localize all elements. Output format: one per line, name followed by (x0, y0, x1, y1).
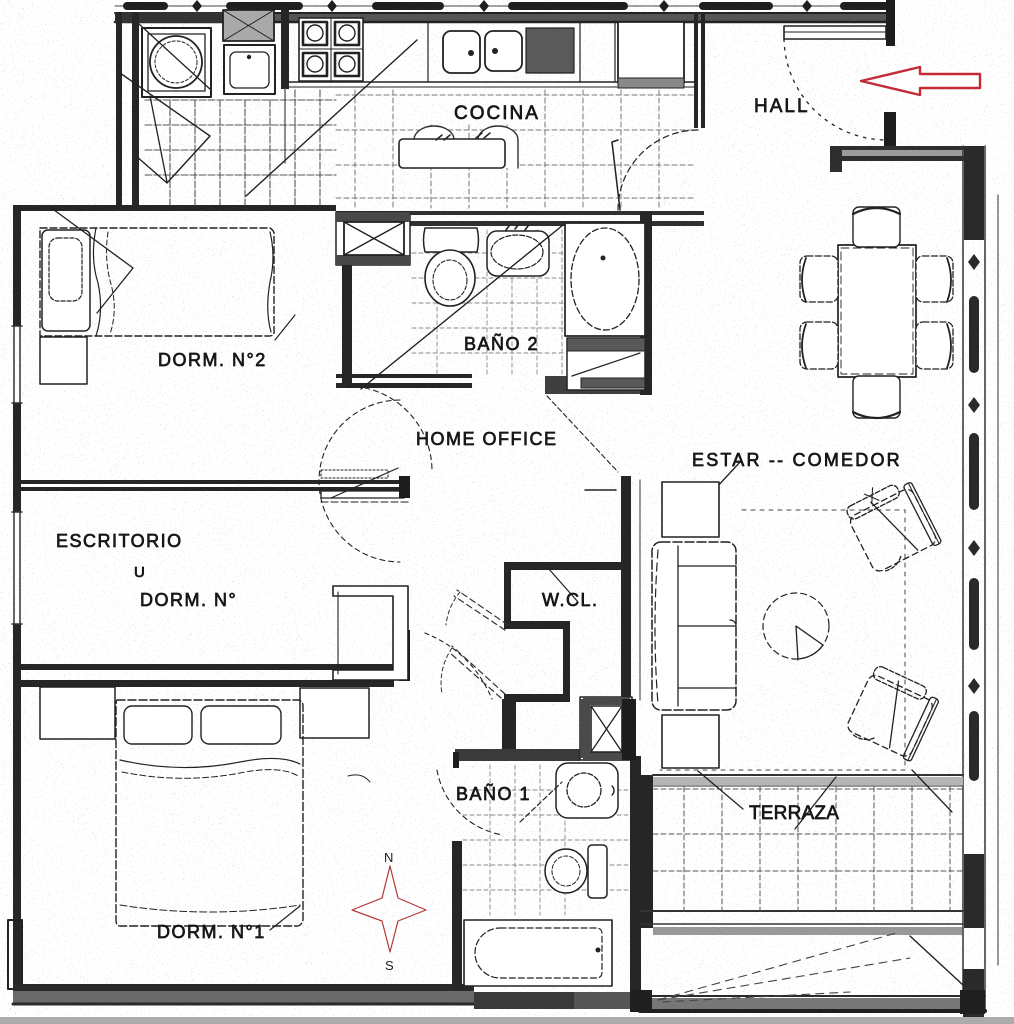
svg-text:COCINA: COCINA (454, 103, 540, 124)
svg-text:N: N (384, 850, 393, 865)
svg-text:DORM. N°: DORM. N° (140, 590, 237, 610)
svg-text:DORM. N°2: DORM. N°2 (158, 350, 267, 370)
svg-text:BAÑO 1: BAÑO 1 (456, 783, 531, 804)
svg-text:W.CL.: W.CL. (542, 590, 599, 610)
svg-text:ESTAR -- COMEDOR: ESTAR -- COMEDOR (692, 450, 902, 470)
svg-text:ESCRITORIO: ESCRITORIO (56, 531, 183, 551)
svg-text:TERRAZA: TERRAZA (749, 803, 839, 824)
svg-text:S: S (385, 958, 394, 973)
svg-text:BAÑO 2: BAÑO 2 (464, 333, 539, 354)
svg-text:HOME OFFICE: HOME OFFICE (416, 429, 558, 449)
svg-text:U: U (134, 564, 146, 581)
svg-text:DORM. N°1: DORM. N°1 (157, 922, 266, 942)
svg-text:HALL: HALL (754, 96, 810, 117)
